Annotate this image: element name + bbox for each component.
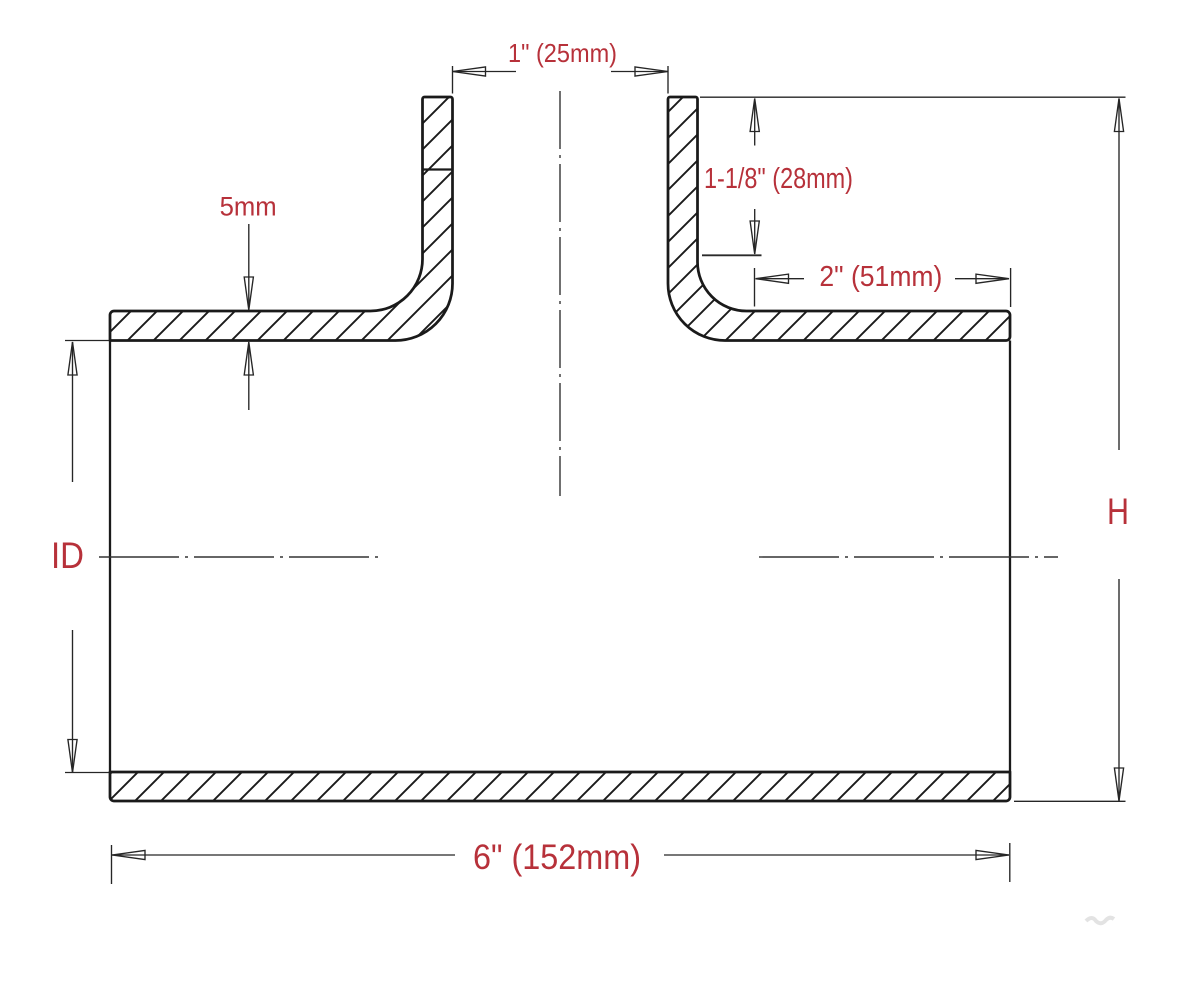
svg-text:ID: ID (51, 535, 84, 576)
svg-text:1" (25mm): 1" (25mm) (508, 38, 617, 68)
svg-text:H: H (1107, 491, 1129, 532)
svg-text:2" (51mm): 2" (51mm) (819, 261, 942, 293)
svg-text:1-1/8" (28mm): 1-1/8" (28mm) (704, 163, 853, 195)
svg-text:6" (152mm): 6" (152mm) (473, 838, 641, 877)
svg-text:5mm: 5mm (220, 192, 277, 222)
